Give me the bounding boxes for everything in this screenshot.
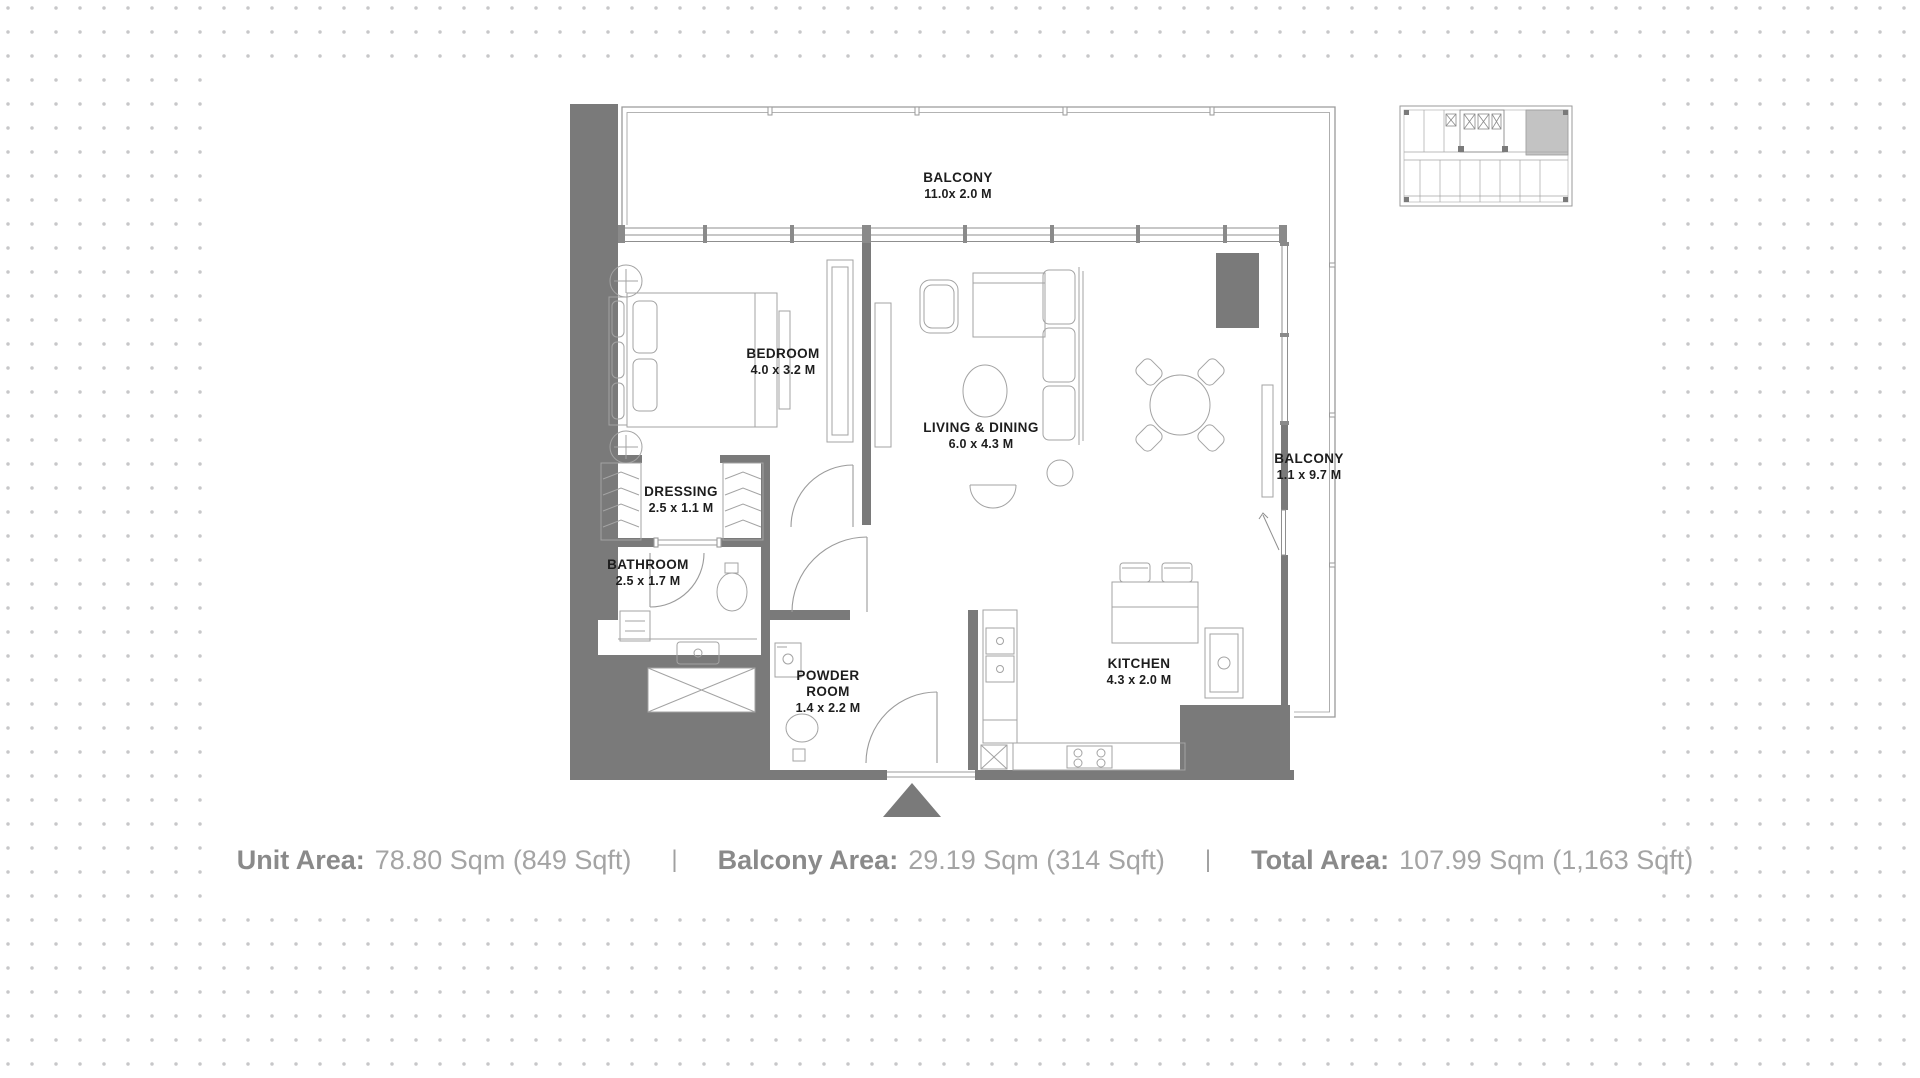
key-plan-unit-highlight: [1526, 110, 1568, 155]
room-label-living-dining: LIVING & DINING 6.0 x 4.3 M: [881, 420, 1081, 452]
room-label-dressing: DRESSING 2.5 x 1.1 M: [581, 484, 781, 516]
total-area-value: 107.99 Sqm (1,163 Sqft): [1399, 845, 1693, 876]
room-label-kitchen: KITCHEN 4.3 x 2.0 M: [1039, 656, 1239, 688]
summary-separator: |: [1205, 846, 1211, 874]
room-label-bedroom: BEDROOM 4.0 x 3.2 M: [683, 346, 883, 378]
entrance-arrow-icon: [883, 783, 941, 817]
balcony-area-label: Balcony Area:: [718, 845, 899, 876]
key-plan-drawing: [1398, 100, 1576, 215]
unit-area-value: 78.80 Sqm (849 Sqft): [375, 845, 632, 876]
summary-separator: |: [671, 846, 677, 874]
key-plan-thumbnail: [1398, 100, 1576, 215]
area-summary: Unit Area: 78.80 Sqm (849 Sqft) | Balcon…: [240, 840, 1690, 880]
floor-plan-drawing: [565, 95, 1355, 820]
room-label-balcony-right: BALCONY 1.1 x 9.7 M: [1249, 451, 1369, 483]
room-label-bathroom: BATHROOM 2.5 x 1.7 M: [548, 557, 748, 589]
service-shaft: [648, 668, 755, 712]
room-label-balcony-top: BALCONY 11.0x 2.0 M: [858, 170, 1058, 202]
balcony-area-value: 29.19 Sqm (314 Sqft): [908, 845, 1165, 876]
floor-plan: [565, 95, 1355, 820]
page: { "floorplan": { "rooms": [ {"id": "balc…: [0, 0, 1920, 1078]
room-label-powder-room: POWDER ROOM 1.4 x 2.2 M: [785, 668, 871, 716]
window-band: [618, 225, 1287, 243]
total-area-label: Total Area:: [1251, 845, 1389, 876]
unit-area-label: Unit Area:: [237, 845, 365, 876]
